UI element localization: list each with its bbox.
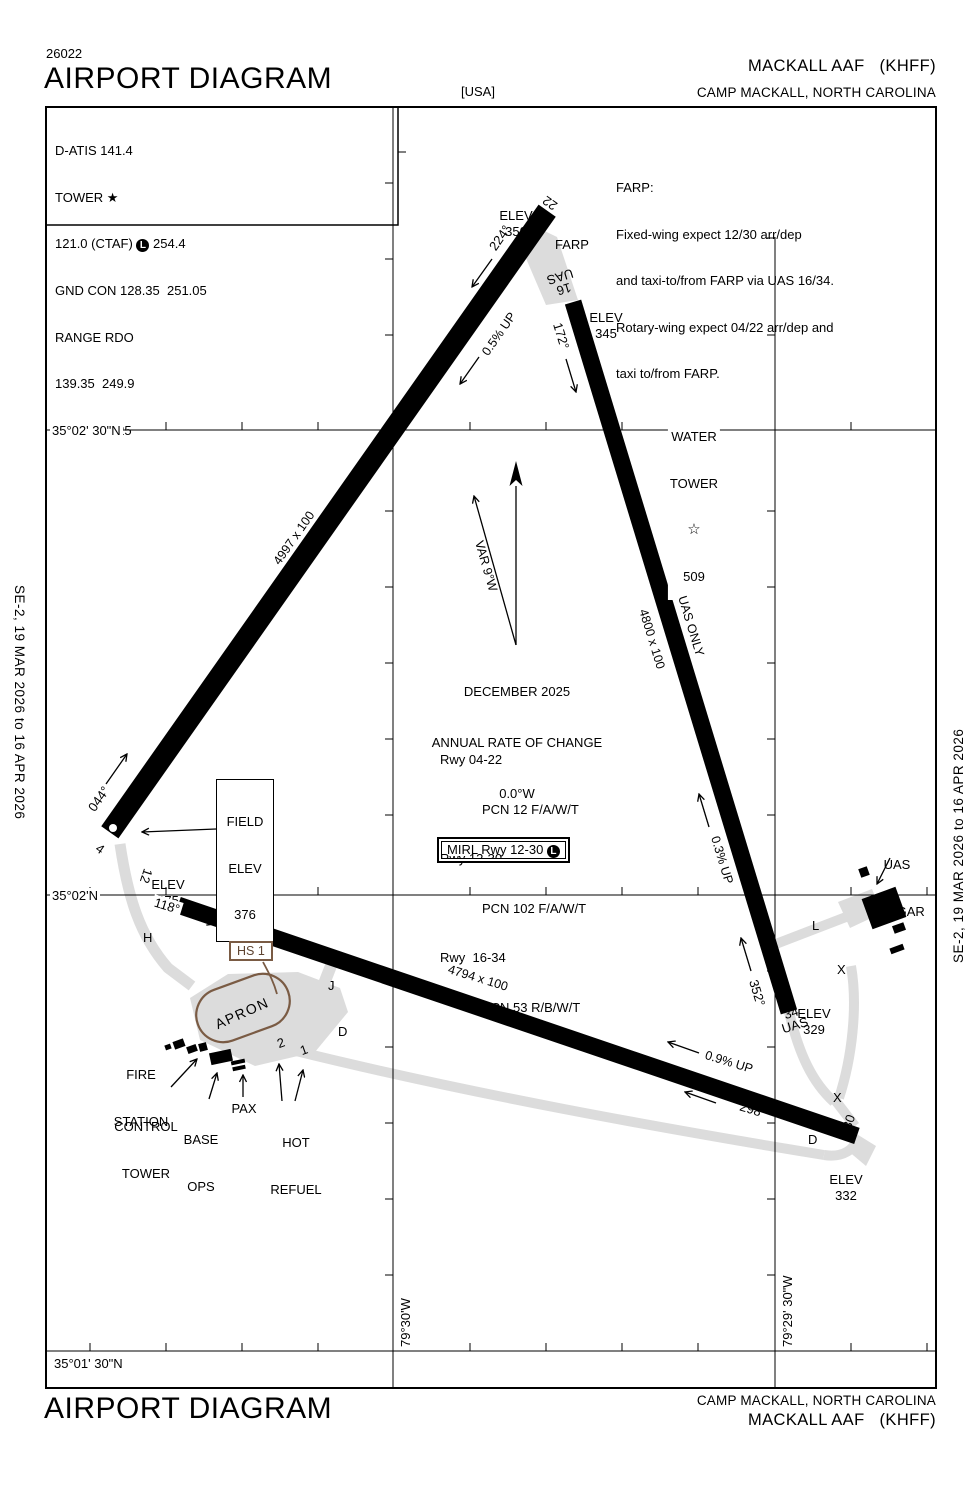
arrow-slope-1634 <box>699 794 709 827</box>
label-line: CONTROL <box>114 1119 178 1135</box>
elev-value: 332 <box>829 1188 862 1204</box>
margin-note-right: SE-2, 19 MAR 2026 to 16 APR 2026 <box>951 729 966 963</box>
farp-note-line: Rotary-wing expect 04/22 arr/dep and <box>616 320 834 336</box>
elev-word: ELEV <box>499 208 532 224</box>
building-pax-2 <box>232 1065 246 1072</box>
lat-label-top: 35°02' 30"N <box>50 423 123 439</box>
label-line: HOT <box>270 1135 321 1151</box>
taxiway-d-label: D <box>338 1024 347 1040</box>
taxiway-j-label: J <box>328 978 335 994</box>
farp-note: FARP: Fixed-wing expect 12/30 arr/dep an… <box>616 149 834 397</box>
taxiway-x-east <box>839 966 854 1098</box>
water-tower-label: WATER TOWER ☆ 509 <box>668 398 720 600</box>
elev-345: ELEV345 <box>589 279 622 357</box>
arrow-hot-refuel-2 <box>279 1064 282 1101</box>
north-arrow-head <box>510 461 523 486</box>
farp-note-line: taxi to/from FARP. <box>616 366 834 382</box>
hotspot-hs1-box: HS 1 <box>229 941 273 961</box>
mirl-box: MIRL Rwy 12-30 L <box>437 837 570 863</box>
lighting-l-icon: L <box>547 845 560 858</box>
label-line: FIRE <box>114 1067 168 1083</box>
variation-date: DECEMBER 2025 <box>432 683 602 700</box>
airport-diagram-page: { "page": { "chart_code": "26022", "titl… <box>0 0 979 1500</box>
elev-word: ELEV <box>589 310 622 326</box>
comms-datis: D-ATIS 141.4 <box>55 143 207 159</box>
margin-note-left: SE-2, 19 MAR 2026 to 16 APR 2026 <box>12 585 27 819</box>
airport-name-bottom: MACKALL AAF (KHFF) <box>748 1411 936 1430</box>
elev-word: ELEV <box>151 877 184 893</box>
arrow-hdg-044 <box>106 754 127 784</box>
pcn-value: PCN 12 F/A/W/T <box>440 802 586 819</box>
water-tower-elev: 509 <box>670 569 718 585</box>
building-small-bar <box>889 944 904 954</box>
city-top: CAMP MACKALL, NORTH CAROLINA <box>697 85 936 100</box>
field-elev-line: ELEV <box>217 861 273 877</box>
comms-ctaf-freq: 121.0 (CTAF) <box>55 236 133 251</box>
taxiway-l-label: L <box>812 918 819 934</box>
comms-tower: TOWER ★ <box>55 190 207 206</box>
label-line: HANGAR <box>869 904 925 920</box>
taxiway-x-label-2: X <box>833 1090 842 1106</box>
comms-gnd: GND CON 128.35 251.05 <box>55 283 207 299</box>
label-line: UAS <box>869 857 925 873</box>
comms-ctaf: 121.0 (CTAF) L 254.4 <box>55 236 207 252</box>
arrow-slope-1230 <box>668 1042 699 1053</box>
comms-box: D-ATIS 141.4 TOWER ★ 121.0 (CTAF) L 254.… <box>55 112 207 454</box>
label-line: OPS <box>184 1179 219 1195</box>
arrow-slope-0422 <box>460 357 479 384</box>
water-tower-line: WATER <box>670 429 718 445</box>
water-tower-line: TOWER <box>670 476 718 492</box>
taxiway-h-label: H <box>143 930 152 946</box>
building-base-ops <box>209 1049 233 1065</box>
pcn-note: Rwy 04-22 PCN 12 F/A/W/T Rwy 12-30 PCN 1… <box>440 719 586 1033</box>
lat-label-bottom: 35°01' 30"N <box>54 1356 123 1372</box>
pcn-rwy: Rwy 04-22 <box>440 752 586 769</box>
arrow-hdg-172 <box>566 359 576 392</box>
taxiway-d-label-2: D <box>808 1132 817 1148</box>
building-pax-1 <box>231 1059 246 1066</box>
arrow-hdg-352 <box>741 938 751 971</box>
comms-range2: 139.35 249.9 <box>55 376 207 392</box>
hot-refuel-label: HOT REFUEL <box>270 1104 321 1213</box>
building-fire-3 <box>186 1044 198 1054</box>
field-elev-value: 376 <box>217 907 273 923</box>
arrow-hot-refuel-1 <box>295 1070 303 1101</box>
chart-code: 26022 <box>46 46 82 62</box>
control-tower-label: CONTROL TOWER <box>114 1088 178 1197</box>
elev-value: 345 <box>589 326 622 342</box>
pcn-value: PCN 53 R/B/W/T <box>440 1000 586 1017</box>
taxiway-l <box>768 917 846 947</box>
farp-note-line: Fixed-wing expect 12/30 arr/dep <box>616 227 834 243</box>
pcn-value: PCN 102 F/A/W/T <box>440 901 586 918</box>
building-fire-2 <box>172 1038 185 1049</box>
arrow-field-elev <box>142 829 216 832</box>
lat-label-mid: 35°02'N <box>50 888 100 904</box>
elev-332: ELEV332 <box>829 1141 862 1219</box>
page-title: AIRPORT DIAGRAM <box>44 62 332 96</box>
field-elev-box: FIELD ELEV 376 <box>216 779 274 942</box>
runway-04-threshold-dot <box>109 824 117 832</box>
building-small-square <box>858 866 870 878</box>
base-ops-label: BASE OPS <box>184 1101 219 1210</box>
city-bottom: CAMP MACKALL, NORTH CAROLINA <box>697 1393 936 1408</box>
farp-note-line: and taxi-to/from FARP via UAS 16/34. <box>616 273 834 289</box>
field-elev-line: FIELD <box>217 814 273 830</box>
uas-hangar-label: UAS HANGAR <box>869 826 925 935</box>
arrow-base-ops <box>209 1073 217 1099</box>
arrow-control-tower <box>171 1059 197 1087</box>
label-line: BASE <box>184 1132 219 1148</box>
obstacle-star-icon: ☆ <box>670 522 718 538</box>
lighting-l-icon: L <box>136 239 149 252</box>
building-control-tower <box>198 1042 208 1052</box>
region-tag: [USA] <box>461 84 495 100</box>
lon-label-left: 79°30'W <box>398 1298 414 1347</box>
label-line: REFUEL <box>270 1182 321 1198</box>
farp-label: FARP <box>555 237 589 253</box>
pax-label: PAX <box>231 1101 256 1117</box>
page-title-bottom: AIRPORT DIAGRAM <box>44 1392 332 1426</box>
comms-range1: RANGE RDO <box>55 330 207 346</box>
lon-label-right: 79°29' 30"W <box>780 1275 796 1347</box>
pcn-rwy: Rwy 16-34 <box>440 950 586 967</box>
farp-note-line: FARP: <box>616 180 834 196</box>
airport-name-top: MACKALL AAF (KHFF) <box>748 57 936 76</box>
comms-ctaf-uhf: 254.4 <box>153 236 186 251</box>
mirl-text: MIRL Rwy 12-30 <box>447 842 543 857</box>
elev-word: ELEV <box>829 1172 862 1188</box>
taxiway-x-label-1: X <box>837 962 846 978</box>
label-line: TOWER <box>114 1166 178 1182</box>
